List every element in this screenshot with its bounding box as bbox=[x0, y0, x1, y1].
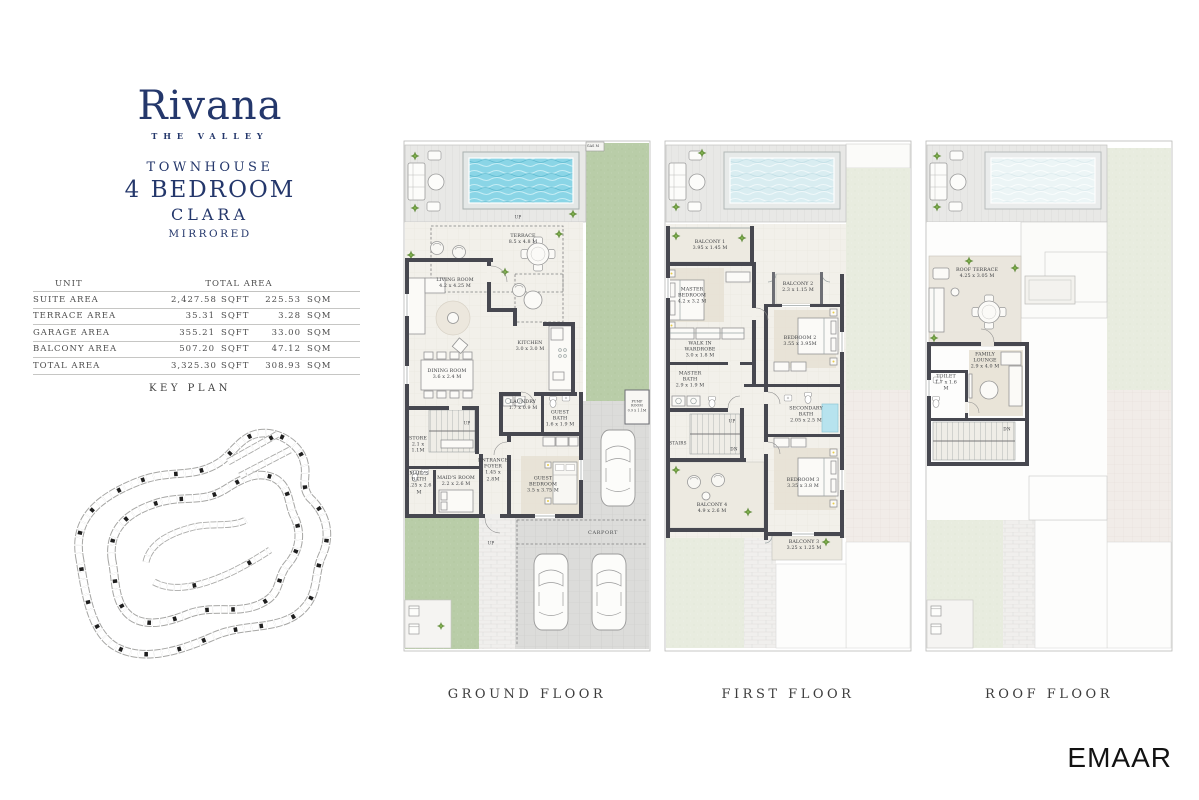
row-label: TERRACE AREA bbox=[33, 311, 171, 321]
ground-floor-plan: TERRACE8.5 x 4.8 M LIVING ROOM4.2 x 4.25… bbox=[403, 140, 651, 652]
swimming-pool bbox=[991, 158, 1095, 203]
up-label-stairs: UP bbox=[459, 420, 475, 425]
swimming-pool bbox=[469, 158, 573, 203]
unit-variant: MIRRORED bbox=[60, 228, 360, 240]
room-label-roof-terrace: ROOF TERRACE4.25 x 3.05 M bbox=[954, 268, 1000, 280]
key-plan-map bbox=[42, 410, 342, 692]
room-label-guest-bedroom: GUEST BEDROOM3.5 x 3.75 M bbox=[526, 477, 560, 496]
room-label-secondary-bath: SECONDARY BATH2.05 x 2.5 M bbox=[788, 407, 824, 426]
community-loops bbox=[79, 433, 327, 654]
room-label-balcony2: BALCONY 22.3 x 1.15 M bbox=[776, 282, 820, 294]
room-label-terrace: TERRACE8.5 x 4.8 M bbox=[502, 234, 544, 246]
room-label-store: STORE2.1 x 1.1M bbox=[405, 437, 431, 456]
ground-floor-svg bbox=[403, 140, 651, 652]
room-label-toilet: TOILET1.7 x 1.6 M bbox=[932, 375, 960, 394]
pool-deck bbox=[405, 145, 586, 222]
unit-title-block: TOWNHOUSE 4 BEDROOM CLARA MIRRORED bbox=[60, 160, 360, 240]
row-label: BALCONY AREA bbox=[33, 344, 171, 354]
row-label: TOTAL AREA bbox=[33, 361, 171, 371]
room-label-maids-bath: MAID'S BATH1.25 x 2.6 M bbox=[406, 472, 432, 497]
row-sqft-unit: SQFT bbox=[221, 361, 257, 371]
row-sqm-unit: SQM bbox=[307, 311, 344, 321]
row-sqft-unit: SQFT bbox=[221, 328, 257, 338]
room-label-foyer: ENTRANCE FOYER1.45 x 2.8M bbox=[478, 459, 508, 484]
caption-roof-floor: ROOF FLOOR bbox=[925, 687, 1173, 702]
brochure-page: Rivana THE VALLEY TOWNHOUSE 4 BEDROOM CL… bbox=[0, 0, 1199, 800]
row-sqft-unit: SQFT bbox=[221, 344, 257, 354]
row-sqm: 47.12 bbox=[257, 344, 307, 354]
up-label-path: UP bbox=[483, 540, 499, 545]
row-sqft: 2,427.58 bbox=[171, 295, 221, 305]
row-sqm: 3.28 bbox=[257, 311, 307, 321]
unit-type: TOWNHOUSE bbox=[60, 160, 360, 175]
room-label-bedroom3: BEDROOM 33.35 x 3.8 M bbox=[784, 478, 822, 490]
row-sqm: 225.53 bbox=[257, 295, 307, 305]
roof-floor-plan: ROOF TERRACE4.25 x 3.05 M FAMILY LOUNGE2… bbox=[925, 140, 1173, 652]
row-sqft-unit: SQFT bbox=[221, 311, 257, 321]
room-label-guest-bath: GUEST BATH1.6 x 1.9 M bbox=[545, 411, 575, 430]
table-row: TERRACE AREA 35.31 SQFT 3.28 SQM bbox=[33, 309, 360, 326]
swimming-pool bbox=[730, 158, 834, 203]
room-label-dining: DINING ROOM3.6 x 2.4 M bbox=[426, 369, 468, 381]
key-plan-title: KEY PLAN bbox=[60, 383, 320, 394]
patio-corner bbox=[405, 600, 451, 648]
room-label-balcony4: BALCONY 44.9 x 2.6 M bbox=[689, 503, 735, 515]
patio-corner bbox=[927, 600, 973, 648]
row-sqm-unit: SQM bbox=[307, 361, 344, 371]
first-floor-svg bbox=[664, 140, 912, 652]
emaar-logo: EMAAR bbox=[1067, 742, 1172, 774]
bedroom3-furniture bbox=[774, 438, 838, 510]
pool-deck bbox=[927, 145, 1107, 222]
row-label: SUITE AREA bbox=[33, 295, 171, 305]
row-sqft-unit: SQFT bbox=[221, 295, 257, 305]
row-sqft: 3,325.30 bbox=[171, 361, 221, 371]
room-label-wardrobe: WALK IN WARDROBE3.0 x 1.8 M bbox=[679, 342, 721, 361]
room-label-laundry: LAUNDRY1.7 x 0.9 M bbox=[505, 400, 541, 412]
room-label-master-bedroom: MASTER BEDROOM4.2 x 3.2 M bbox=[674, 288, 710, 307]
room-label-maids-room: MAID'S ROOM2.2 x 2.6 M bbox=[436, 476, 476, 488]
stairs-label: STAIRS bbox=[665, 440, 691, 445]
rivana-logo: Rivana bbox=[60, 86, 360, 126]
area-table-header: UNIT TOTAL AREA bbox=[33, 276, 360, 292]
wardrobe-shelves bbox=[670, 328, 744, 339]
room-label-bedroom2: BEDROOM 23.55 x 3.95M bbox=[780, 336, 820, 348]
row-sqft: 35.31 bbox=[171, 311, 221, 321]
room-label-carport: CARPORT bbox=[577, 530, 629, 537]
dn-label: DN bbox=[727, 446, 741, 451]
room-label-balcony1: BALCONY 13.95 x 1.45 M bbox=[688, 240, 732, 252]
room-label-family-lounge: FAMILY LOUNGE2.9 x 4.0 M bbox=[963, 353, 1007, 372]
row-sqft: 507.20 bbox=[171, 344, 221, 354]
key-plan-svg bbox=[42, 410, 342, 688]
pool-deck bbox=[666, 145, 846, 222]
room-label-living: LIVING ROOM4.2 x 4.25 M bbox=[432, 278, 478, 290]
room-label-balcony3: BALCONY 33.25 x 1.25 M bbox=[782, 540, 826, 552]
table-row: BALCONY AREA 507.20 SQFT 47.12 SQM bbox=[33, 342, 360, 359]
row-sqm-unit: SQM bbox=[307, 295, 344, 305]
row-sqft: 355.21 bbox=[171, 328, 221, 338]
roof-floor-svg bbox=[925, 140, 1173, 652]
up-label-deck: UP bbox=[510, 214, 526, 219]
header-total-area: TOTAL AREA bbox=[171, 279, 307, 289]
brand-block: Rivana THE VALLEY bbox=[60, 86, 360, 141]
room-label-master-bath: MASTER BATH2.9 x 1.9 M bbox=[674, 372, 706, 391]
caption-ground-floor: GROUND FLOOR bbox=[403, 687, 651, 702]
unit-name: CLARA bbox=[60, 205, 360, 224]
row-sqm: 308.93 bbox=[257, 361, 307, 371]
row-label: GARAGE AREA bbox=[33, 328, 171, 338]
room-label-kitchen: KITCHEN3.0 x 3.0 M bbox=[511, 341, 549, 353]
balcony4-zone bbox=[670, 462, 764, 528]
caption-first-floor: FIRST FLOOR bbox=[664, 687, 912, 702]
row-sqm: 33.00 bbox=[257, 328, 307, 338]
gas-meter-label: GAS M bbox=[583, 144, 603, 148]
brand-tagline: THE VALLEY bbox=[60, 131, 360, 141]
row-sqm-unit: SQM bbox=[307, 328, 344, 338]
dn-label: DN bbox=[1000, 426, 1014, 431]
area-table: UNIT TOTAL AREA SUITE AREA 2,427.58 SQFT… bbox=[33, 276, 360, 375]
header-unit: UNIT bbox=[33, 279, 171, 289]
table-row: SUITE AREA 2,427.58 SQFT 225.53 SQM bbox=[33, 292, 360, 309]
table-row: TOTAL AREA 3,325.30 SQFT 308.93 SQM bbox=[33, 358, 360, 375]
room-label-pump: PUMP ROOM0.9 x 1.1M bbox=[626, 400, 648, 413]
unit-bedrooms: 4 BEDROOM bbox=[60, 177, 360, 203]
up-label: UP bbox=[725, 418, 739, 423]
first-floor-plan: BALCONY 13.95 x 1.45 M MASTER BEDROOM4.2… bbox=[664, 140, 912, 652]
table-row: GARAGE AREA 355.21 SQFT 33.00 SQM bbox=[33, 325, 360, 342]
kitchen-counters bbox=[549, 326, 573, 390]
row-sqm-unit: SQM bbox=[307, 344, 344, 354]
